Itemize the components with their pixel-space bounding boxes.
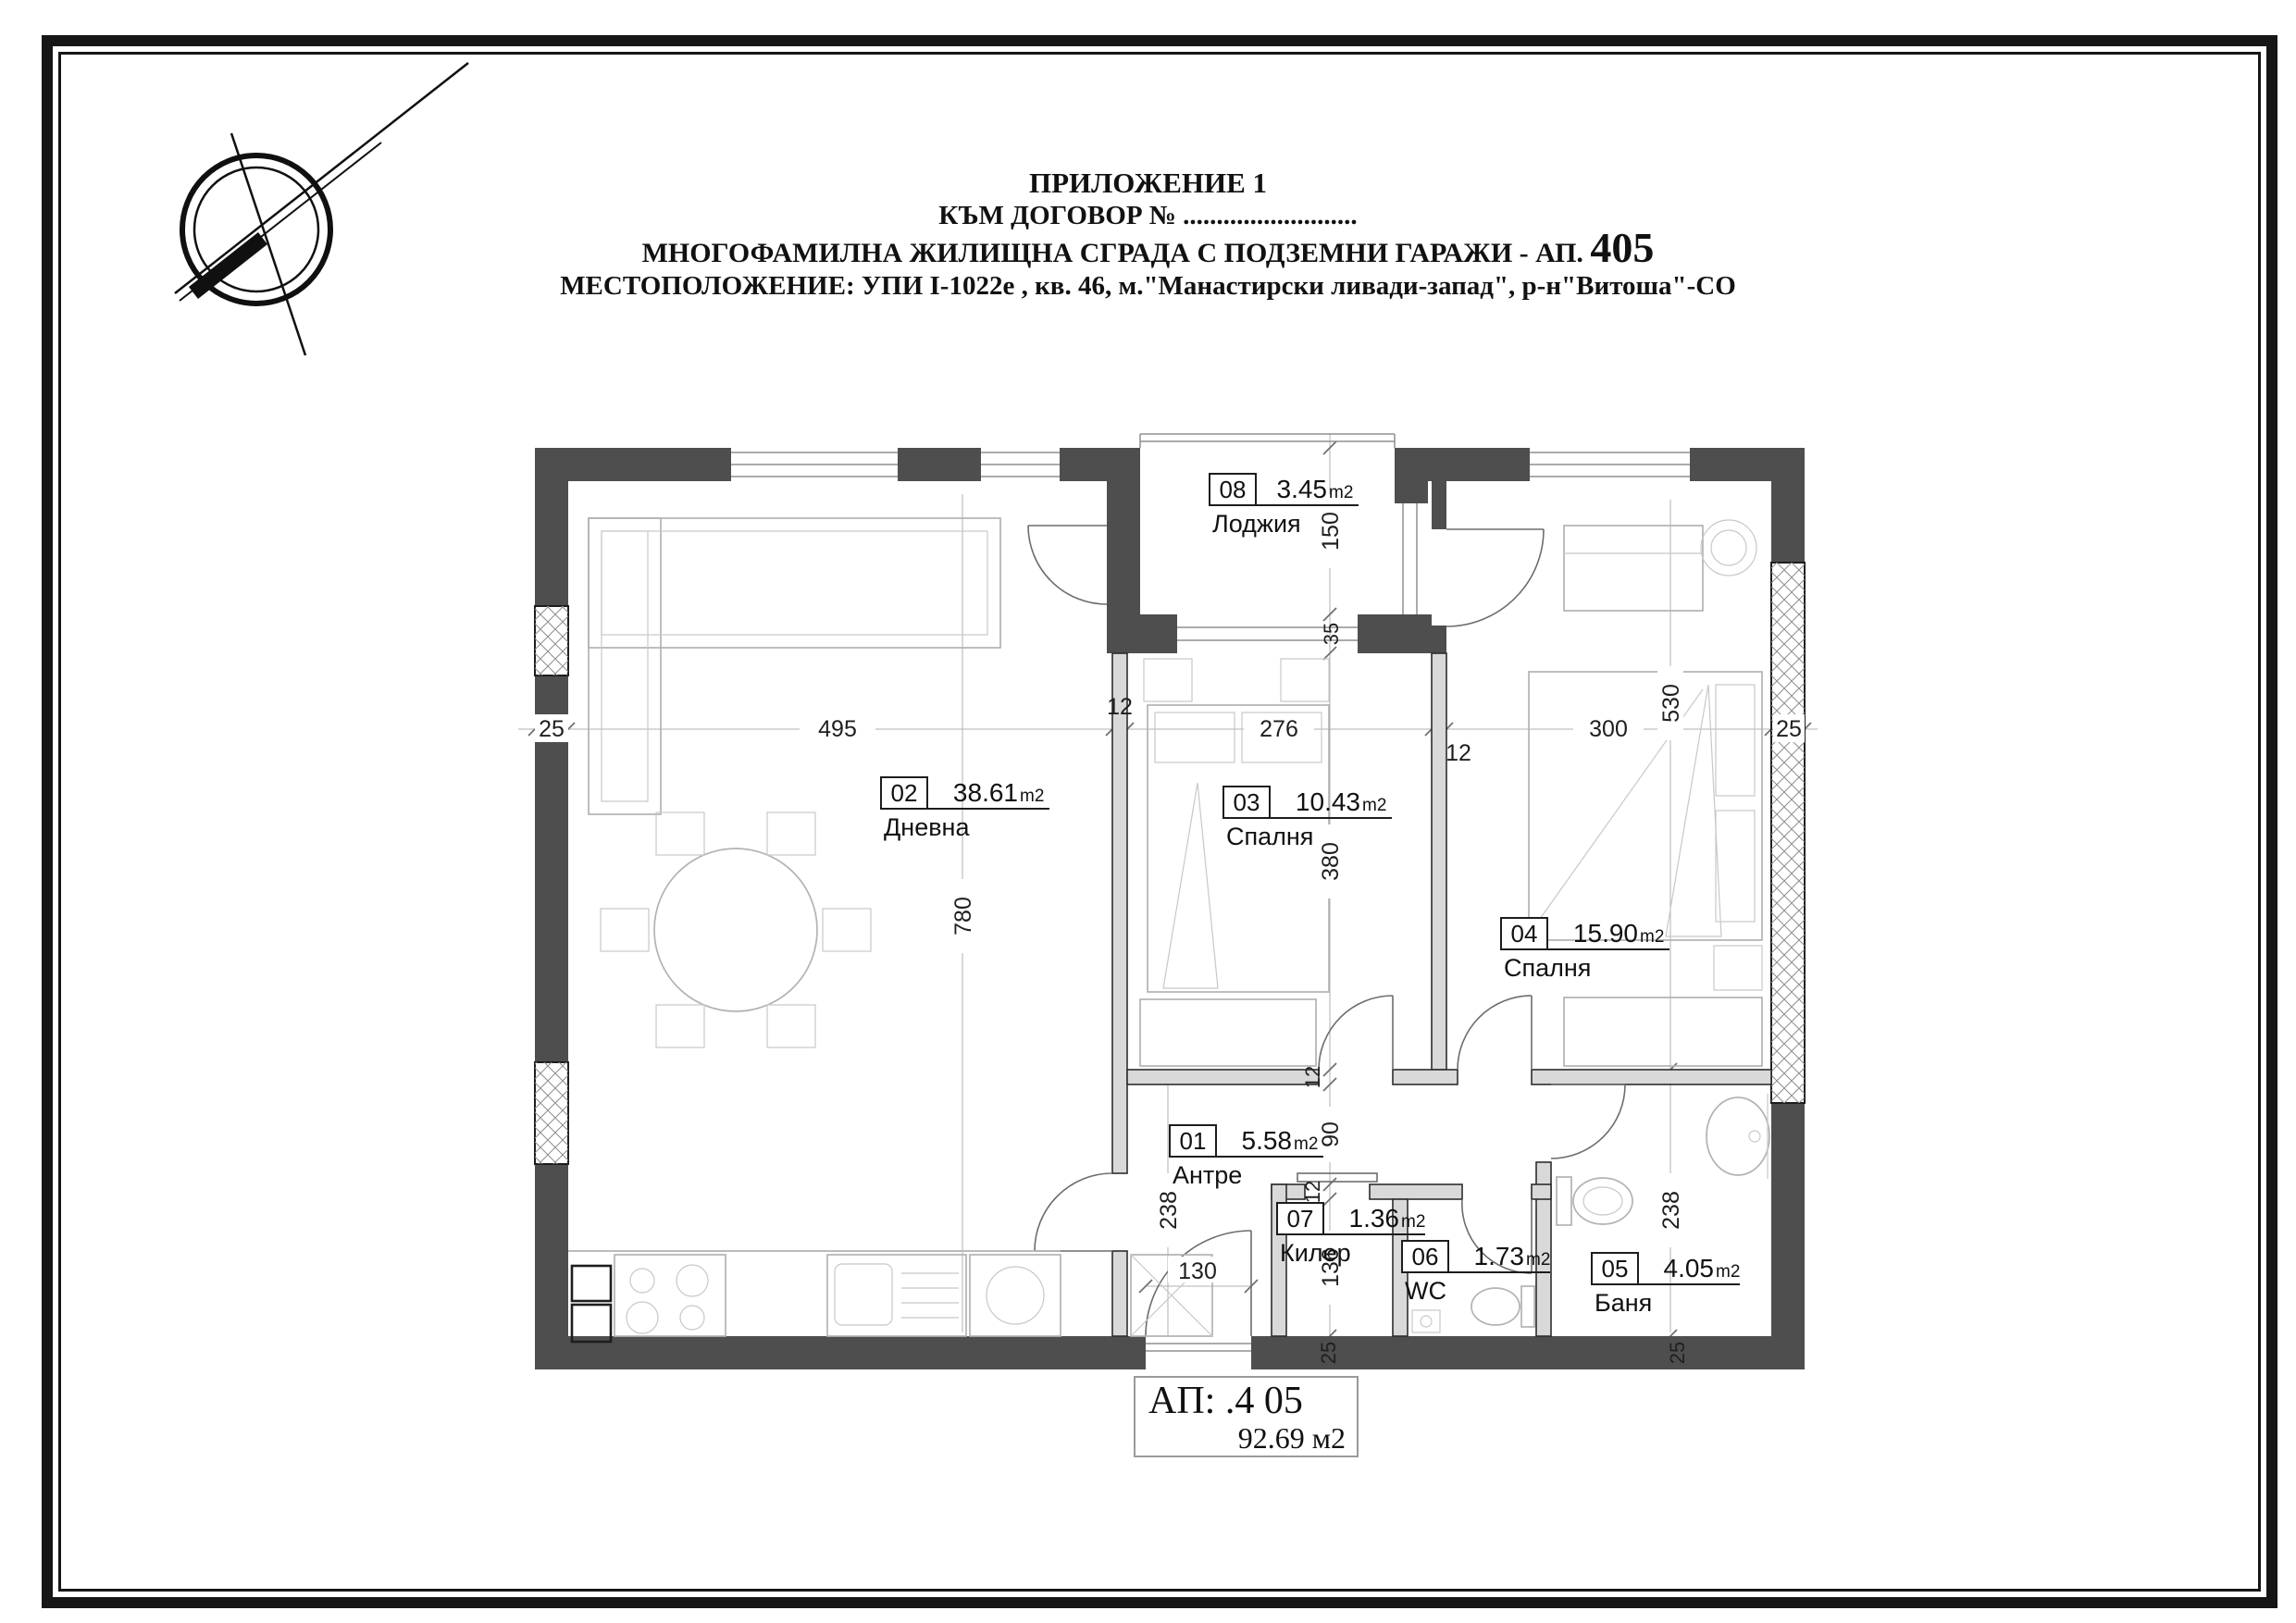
svg-text:06: 06 bbox=[1412, 1243, 1439, 1270]
dim-bottom-wall-b: 25 bbox=[1666, 1342, 1689, 1364]
dim-bedroom3-width: 276 bbox=[1260, 716, 1298, 742]
svg-text:03: 03 bbox=[1234, 788, 1260, 816]
room-label-bedroom3: 03 10.43 m2 Спалня bbox=[1223, 787, 1392, 850]
svg-text:m2: m2 bbox=[1362, 796, 1386, 815]
svg-text:WC: WC bbox=[1405, 1277, 1446, 1305]
svg-text:10.43: 10.43 bbox=[1296, 787, 1360, 816]
svg-text:5.58: 5.58 bbox=[1242, 1126, 1293, 1155]
svg-text:4.05: 4.05 bbox=[1664, 1254, 1715, 1282]
room-label-bedroom4: 04 15.90 m2 Спалня bbox=[1501, 918, 1669, 982]
svg-text:Спалня: Спалня bbox=[1504, 954, 1591, 982]
svg-text:Антре: Антре bbox=[1173, 1161, 1242, 1189]
window-bedroom4 bbox=[1530, 452, 1690, 477]
room-label-bathroom: 05 4.05 m2 Баня bbox=[1592, 1253, 1740, 1317]
svg-text:m2: m2 bbox=[1329, 483, 1353, 502]
room-label-hall: 01 5.58 m2 Антре bbox=[1170, 1125, 1323, 1189]
svg-text:Спалня: Спалня bbox=[1226, 823, 1313, 850]
door-living-loggia bbox=[1028, 526, 1107, 604]
dim-living-depth: 780 bbox=[950, 897, 976, 935]
dim-partition-right: 12 bbox=[1446, 740, 1471, 766]
door-bathroom bbox=[1551, 1084, 1625, 1158]
apartment-total-area: 92.69 м2 bbox=[1136, 1422, 1357, 1454]
window-living-1 bbox=[731, 452, 898, 477]
door-bedroom4-hall bbox=[1458, 996, 1532, 1070]
window-loggia-right bbox=[1403, 503, 1417, 614]
svg-text:m2: m2 bbox=[1020, 787, 1044, 806]
svg-text:04: 04 bbox=[1511, 920, 1538, 948]
svg-text:Килер: Килер bbox=[1280, 1239, 1351, 1267]
svg-text:1.36: 1.36 bbox=[1349, 1204, 1400, 1233]
sofa bbox=[589, 518, 1000, 814]
svg-text:07: 07 bbox=[1287, 1205, 1314, 1233]
svg-text:Дневна: Дневна bbox=[884, 813, 970, 841]
svg-text:Баня: Баня bbox=[1595, 1289, 1652, 1317]
svg-text:02: 02 bbox=[891, 779, 918, 807]
svg-text:1.73: 1.73 bbox=[1474, 1242, 1525, 1270]
dim-bedroom4-depth: 530 bbox=[1658, 684, 1684, 723]
dim-hall-depth: 238 bbox=[1156, 1191, 1182, 1230]
north-arrow-icon bbox=[175, 63, 468, 355]
dim-bedroom4-width: 300 bbox=[1589, 716, 1628, 742]
dim-bottom-wall-a: 25 bbox=[1317, 1342, 1340, 1364]
svg-text:m2: m2 bbox=[1294, 1134, 1318, 1154]
dim-bedroom3-depth: 380 bbox=[1318, 842, 1344, 881]
dim-corridor-bottom-wall: 12 bbox=[1301, 1181, 1324, 1203]
dim-wall-right: 25 bbox=[1776, 716, 1802, 742]
svg-text:m2: m2 bbox=[1526, 1250, 1550, 1270]
kitchen-counter bbox=[568, 1251, 1061, 1342]
svg-text:38.61: 38.61 bbox=[953, 778, 1018, 807]
door-bedroom4-top bbox=[1446, 529, 1544, 626]
svg-text:08: 08 bbox=[1220, 476, 1247, 503]
svg-text:m2: m2 bbox=[1640, 927, 1664, 947]
svg-text:01: 01 bbox=[1180, 1127, 1207, 1155]
dining-table bbox=[601, 812, 871, 1047]
svg-text:05: 05 bbox=[1602, 1255, 1629, 1282]
bathroom-sink bbox=[1706, 1094, 1769, 1179]
sliding-panel-storage bbox=[1297, 1173, 1377, 1182]
svg-text:m2: m2 bbox=[1716, 1262, 1740, 1282]
door-hall-living bbox=[1035, 1173, 1112, 1251]
svg-text:15.90: 15.90 bbox=[1573, 919, 1638, 948]
window-living-2 bbox=[981, 452, 1060, 477]
dim-corridor-top-wall: 12 bbox=[1301, 1066, 1324, 1088]
dim-corridor-width: 90 bbox=[1318, 1121, 1344, 1147]
wc-sink bbox=[1412, 1310, 1440, 1332]
room-label-living: 02 38.61 m2 Дневна bbox=[881, 777, 1049, 841]
dim-loggia-depth: 150 bbox=[1318, 512, 1344, 551]
dim-entry-door: 130 bbox=[1178, 1258, 1217, 1284]
apartment-summary-box: АП: .4 05 92.69 м2 bbox=[1134, 1376, 1359, 1457]
wc-toilet bbox=[1471, 1286, 1534, 1327]
dim-living-width: 495 bbox=[818, 716, 857, 742]
furniture-bath-wc bbox=[1412, 1094, 1769, 1332]
loggia-railing bbox=[1140, 434, 1395, 448]
apartment-id: АП: .4 05 bbox=[1136, 1378, 1357, 1422]
dim-wall-left: 25 bbox=[539, 716, 565, 742]
svg-text:3.45: 3.45 bbox=[1277, 475, 1328, 503]
furniture-bedroom4 bbox=[1529, 520, 1762, 1066]
dim-bath-depth: 238 bbox=[1658, 1191, 1684, 1230]
svg-text:m2: m2 bbox=[1401, 1212, 1425, 1232]
dim-partition-left: 12 bbox=[1107, 694, 1133, 720]
svg-text:Лоджия: Лоджия bbox=[1212, 510, 1301, 538]
dim-loggia-wall: 35 bbox=[1320, 623, 1343, 645]
entry-threshold bbox=[1146, 1344, 1251, 1351]
bathroom-toilet bbox=[1557, 1177, 1632, 1225]
